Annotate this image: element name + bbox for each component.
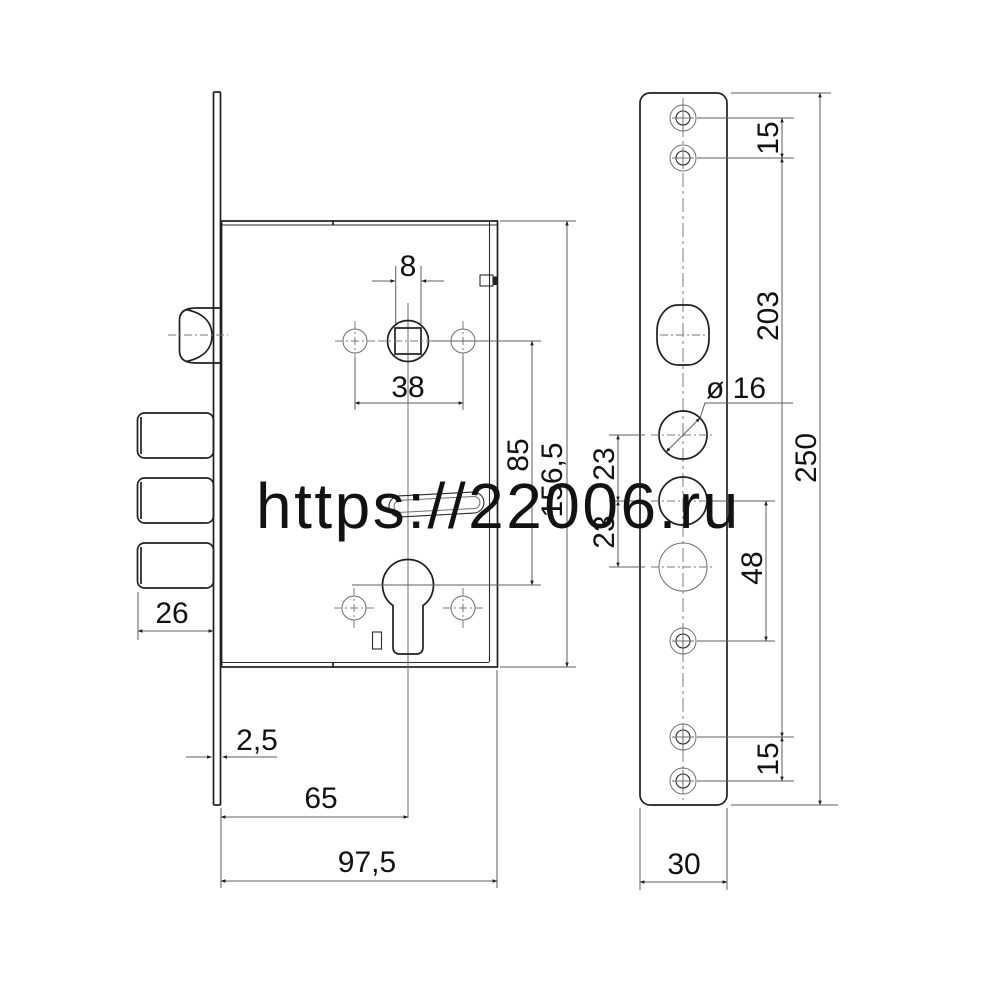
dim-label-97-5: 97,5 bbox=[338, 846, 396, 879]
dim-label-85: 85 bbox=[502, 438, 535, 471]
cylinder-screw-hole-right bbox=[443, 588, 483, 628]
plate-screw-hole-4 bbox=[670, 724, 696, 750]
lock-drawing-svg: 8 38 85 156,5 26 2,5 bbox=[0, 0, 1000, 1000]
latch-bolt bbox=[168, 308, 228, 363]
plate-screw-hole-1 bbox=[670, 105, 696, 131]
dim-label-38: 38 bbox=[391, 371, 424, 404]
dim-case-depth-97-5: 97,5 bbox=[221, 670, 497, 888]
dim-bolt-throw-26: 26 bbox=[138, 592, 213, 640]
lock-case-outline bbox=[222, 221, 498, 667]
handle-screw-hole-left bbox=[335, 321, 375, 361]
drawing-canvas: 8 38 85 156,5 26 2,5 bbox=[0, 0, 1000, 1000]
case-stop-tab bbox=[480, 275, 498, 286]
dim-hole-diameter-16: ø 16 bbox=[666, 372, 793, 452]
dim-label-30: 30 bbox=[667, 848, 700, 881]
case-slot-detail bbox=[373, 632, 382, 649]
dim-screw-span-203: 203 bbox=[752, 158, 785, 737]
dim-plate-length-250: 250 bbox=[731, 93, 838, 805]
faceplate-edge bbox=[214, 92, 221, 805]
dim-label-8: 8 bbox=[400, 250, 417, 283]
dim-plate-width-30: 30 bbox=[640, 808, 727, 890]
dim-label-65: 65 bbox=[304, 782, 337, 815]
deadbolt-2 bbox=[138, 478, 214, 523]
dim-label-48: 48 bbox=[736, 551, 769, 584]
deadbolt-1 bbox=[138, 413, 214, 458]
dim-handle-holes-38: 38 bbox=[355, 357, 463, 410]
plate-screw-hole-5 bbox=[670, 768, 696, 794]
dim-label-15-bottom: 15 bbox=[752, 742, 785, 775]
dim-hub-to-cylinder-85: 85 bbox=[352, 341, 541, 585]
watermark-text: https://22006.ru bbox=[256, 470, 741, 542]
cylinder-screw-hole-left bbox=[334, 588, 374, 628]
dim-label-26: 26 bbox=[155, 597, 188, 630]
plate-screw-hole-2 bbox=[670, 145, 696, 171]
dim-label-2-5: 2,5 bbox=[236, 724, 278, 757]
dim-label-250: 250 bbox=[790, 433, 823, 483]
dim-top-screw-gap-15: 15 bbox=[697, 118, 794, 158]
dim-bottom-screw-gap-15: 15 bbox=[697, 737, 794, 781]
plate-screw-hole-3 bbox=[670, 628, 696, 654]
dim-faceplate-thickness-2-5: 2,5 bbox=[186, 724, 278, 757]
deadbolt-3 bbox=[138, 543, 214, 588]
dim-label-15-top: 15 bbox=[752, 121, 785, 154]
dim-label-203: 203 bbox=[752, 291, 785, 341]
dim-label-dia-16: ø 16 bbox=[706, 372, 766, 405]
